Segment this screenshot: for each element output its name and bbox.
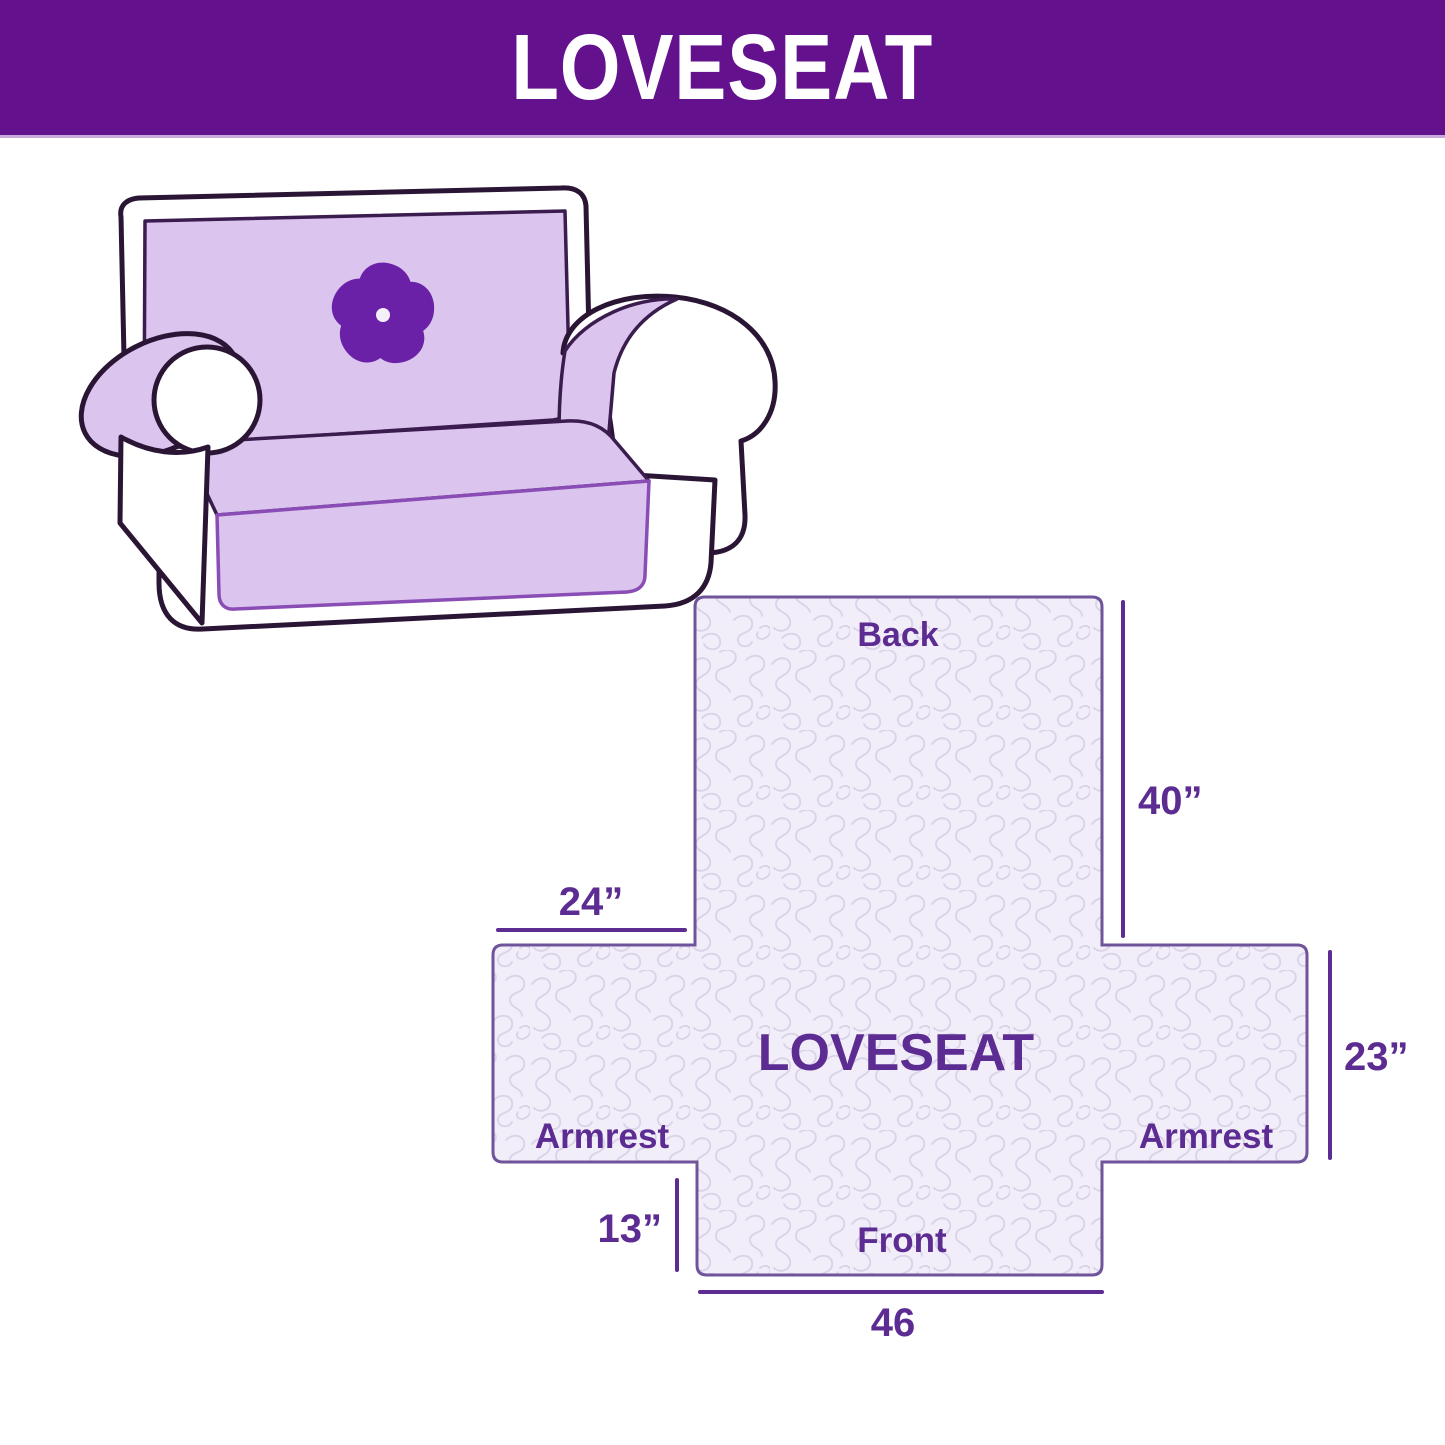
dim-label-front-drop: 13” — [598, 1207, 663, 1251]
sofa-armrest-left-roll — [154, 347, 260, 453]
label-armrest-right: Armrest — [1139, 1117, 1274, 1156]
label-armrest-left: Armrest — [535, 1117, 670, 1156]
header-banner: LOVESEAT — [0, 0, 1445, 138]
cover-shape — [493, 597, 1307, 1275]
dim-label-side-height: 23” — [1344, 1035, 1409, 1079]
dim-label-armrest-top: 24” — [559, 880, 624, 924]
label-center: LOVESEAT — [758, 1024, 1035, 1082]
cover-diagram-svg: Back LOVESEAT Armrest Armrest Front 40” … — [450, 570, 1445, 1360]
page: LOVESEAT — [0, 0, 1445, 1445]
label-front: Front — [857, 1221, 947, 1260]
label-back: Back — [857, 616, 938, 654]
page-title: LOVESEAT — [512, 21, 934, 114]
cover-diagram: Back LOVESEAT Armrest Armrest Front 40” … — [450, 570, 1445, 1360]
dim-label-front-width: 46 — [871, 1301, 916, 1345]
dim-label-back-height: 40” — [1138, 779, 1203, 823]
